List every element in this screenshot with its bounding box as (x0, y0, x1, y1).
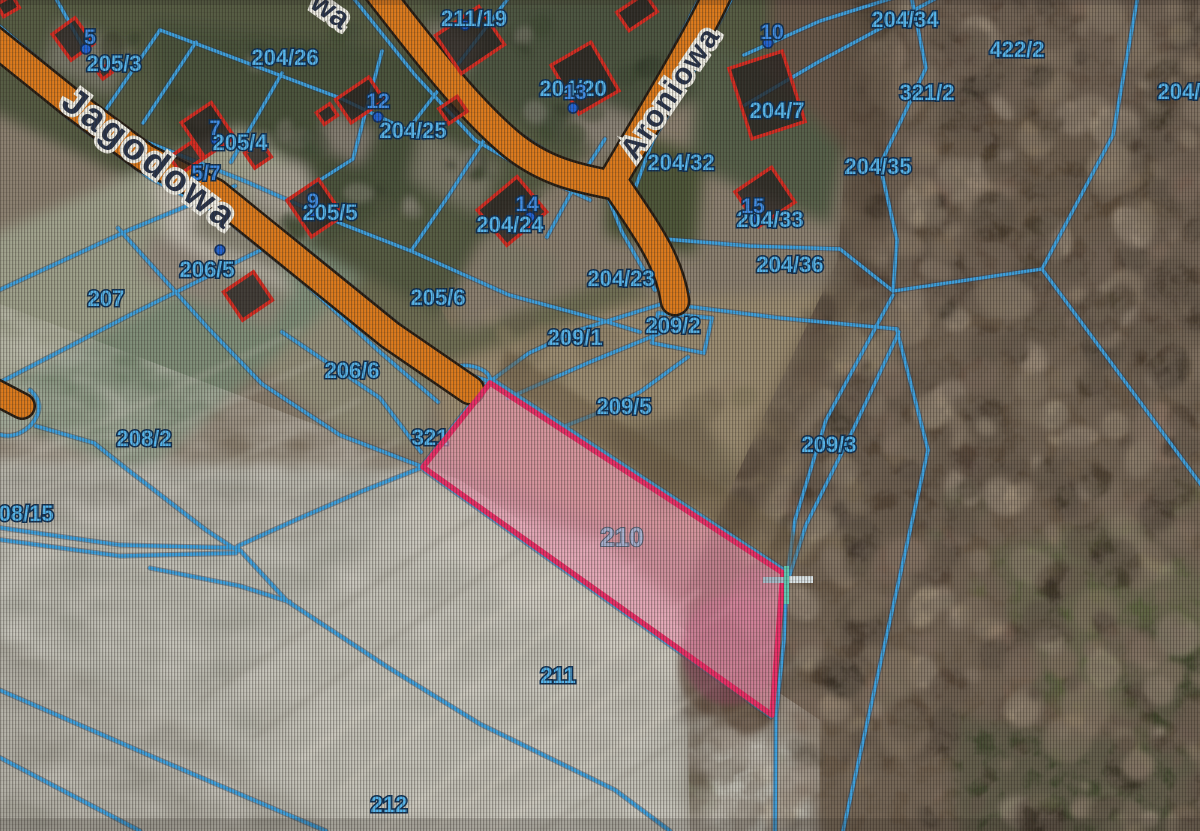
svg-text:209/5: 209/5 (596, 394, 651, 419)
svg-text:211/19: 211/19 (441, 6, 507, 31)
svg-text:205/3: 205/3 (86, 51, 141, 76)
svg-text:205/6: 205/6 (410, 285, 465, 310)
svg-text:12: 12 (366, 90, 389, 113)
svg-text:9: 9 (307, 190, 319, 213)
svg-text:204/7: 204/7 (749, 98, 804, 123)
svg-text:204/36: 204/36 (756, 252, 823, 277)
svg-text:209/2: 209/2 (645, 313, 700, 338)
svg-text:15: 15 (741, 195, 765, 218)
svg-text:208/15: 208/15 (0, 501, 54, 526)
svg-text:5: 5 (84, 26, 96, 49)
svg-text:206/5: 206/5 (179, 257, 234, 282)
svg-text:208/2: 208/2 (116, 426, 171, 451)
svg-text:209/1: 209/1 (547, 325, 602, 350)
svg-text:13: 13 (563, 81, 586, 104)
svg-text:206/6: 206/6 (324, 358, 379, 383)
svg-text:207: 207 (88, 286, 125, 311)
svg-text:321/2: 321/2 (899, 80, 954, 105)
svg-text:14: 14 (515, 193, 539, 216)
svg-text:204/25: 204/25 (379, 118, 446, 143)
svg-text:204/35: 204/35 (844, 154, 911, 179)
svg-text:7: 7 (209, 117, 221, 140)
svg-text:209/3: 209/3 (801, 432, 856, 457)
svg-text:212: 212 (371, 792, 408, 817)
svg-text:10: 10 (760, 21, 783, 44)
svg-text:211: 211 (540, 663, 576, 688)
svg-text:204/23: 204/23 (587, 266, 654, 291)
svg-text:204/4: 204/4 (1157, 79, 1200, 104)
svg-text:422/2: 422/2 (989, 37, 1044, 62)
svg-text:204/32: 204/32 (647, 150, 714, 175)
svg-text:204/34: 204/34 (871, 7, 939, 32)
svg-text:210: 210 (600, 522, 643, 552)
svg-text:204/26: 204/26 (251, 45, 318, 70)
